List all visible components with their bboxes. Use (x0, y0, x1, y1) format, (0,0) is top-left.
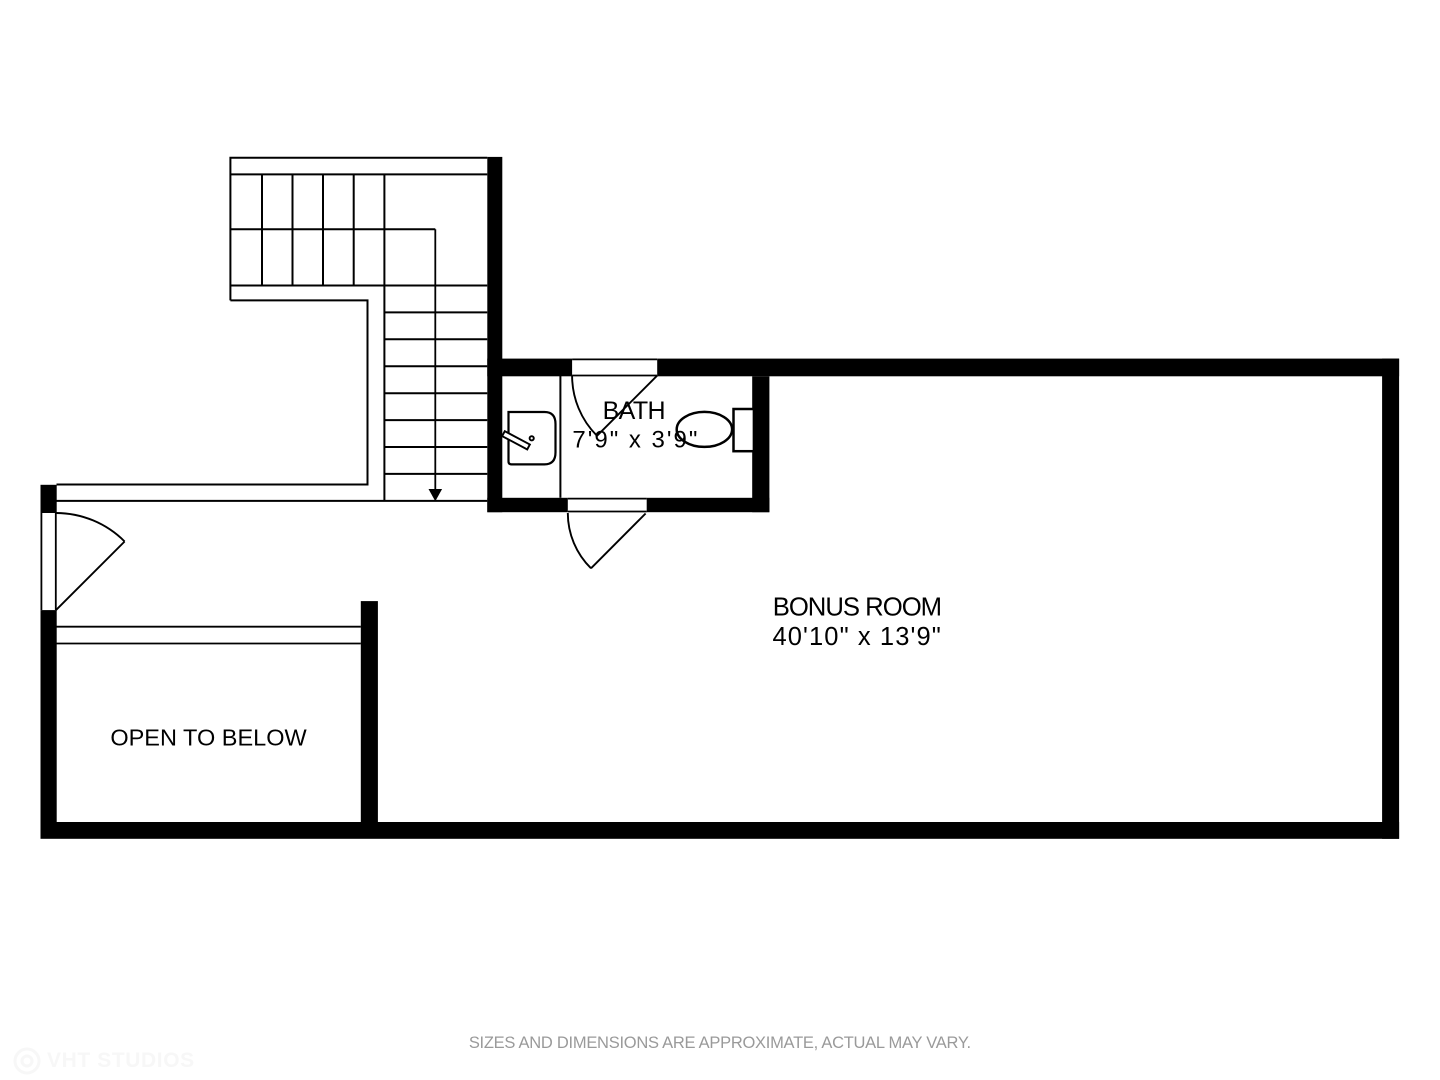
svg-text:SIZES AND DIMENSIONS ARE APPRO: SIZES AND DIMENSIONS ARE APPROXIMATE, AC… (469, 1034, 971, 1052)
svg-text:VHT STUDIOS: VHT STUDIOS (47, 1049, 195, 1072)
svg-text:BONUS ROOM: BONUS ROOM (773, 594, 941, 622)
svg-text:OPEN TO BELOW: OPEN TO BELOW (110, 725, 307, 751)
svg-text:BATH: BATH (603, 397, 665, 425)
svg-text:40'10" x 13'9": 40'10" x 13'9" (772, 623, 941, 651)
svg-text:7'9" x 3'9": 7'9" x 3'9" (572, 427, 699, 454)
